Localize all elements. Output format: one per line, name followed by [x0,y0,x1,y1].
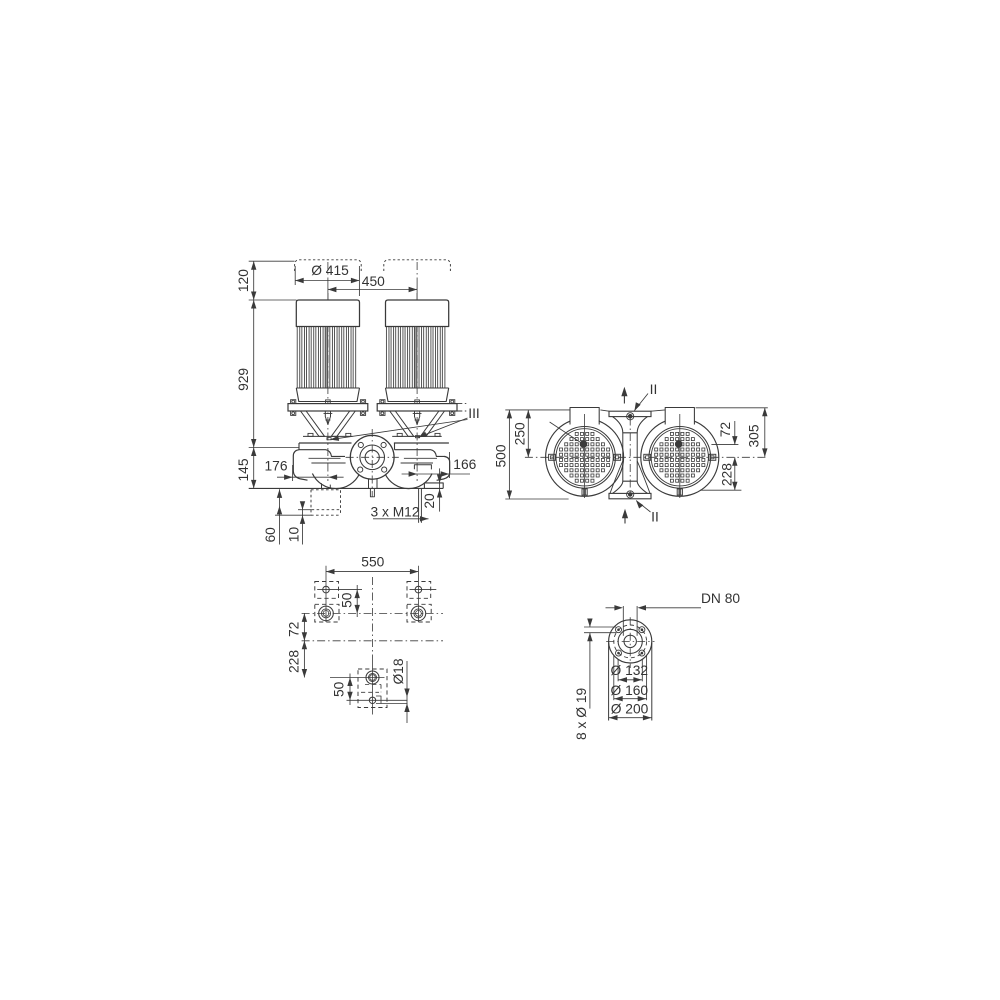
svg-text:II: II [650,382,658,397]
svg-text:228: 228 [720,463,735,486]
svg-text:50: 50 [340,592,355,608]
svg-text:III: III [468,406,480,421]
svg-text:60: 60 [263,527,278,543]
svg-text:DN 80: DN 80 [701,591,740,606]
svg-text:Ø 200: Ø 200 [611,702,649,717]
svg-text:10: 10 [287,527,302,543]
svg-text:72: 72 [718,422,733,437]
svg-text:8 x Ø 19: 8 x Ø 19 [574,688,589,740]
svg-text:250: 250 [512,422,527,445]
svg-text:145: 145 [236,458,251,481]
svg-text:166: 166 [453,457,476,472]
svg-text:228: 228 [287,650,302,673]
svg-text:Ø 132: Ø 132 [611,663,649,678]
svg-text:20: 20 [422,493,437,509]
svg-text:305: 305 [747,424,762,447]
svg-text:120: 120 [236,269,251,292]
svg-text:Ø18: Ø18 [391,658,406,684]
svg-text:500: 500 [493,444,508,467]
svg-text:II: II [651,510,659,525]
svg-text:72: 72 [287,622,302,637]
svg-text:450: 450 [362,274,385,289]
svg-text:550: 550 [361,554,384,569]
svg-text:176: 176 [264,458,287,473]
svg-text:929: 929 [236,368,251,391]
svg-text:3 x M12: 3 x M12 [370,505,419,520]
svg-text:50: 50 [332,681,347,697]
svg-text:Ø 160: Ø 160 [611,683,649,698]
svg-text:Ø 415: Ø 415 [311,263,349,278]
